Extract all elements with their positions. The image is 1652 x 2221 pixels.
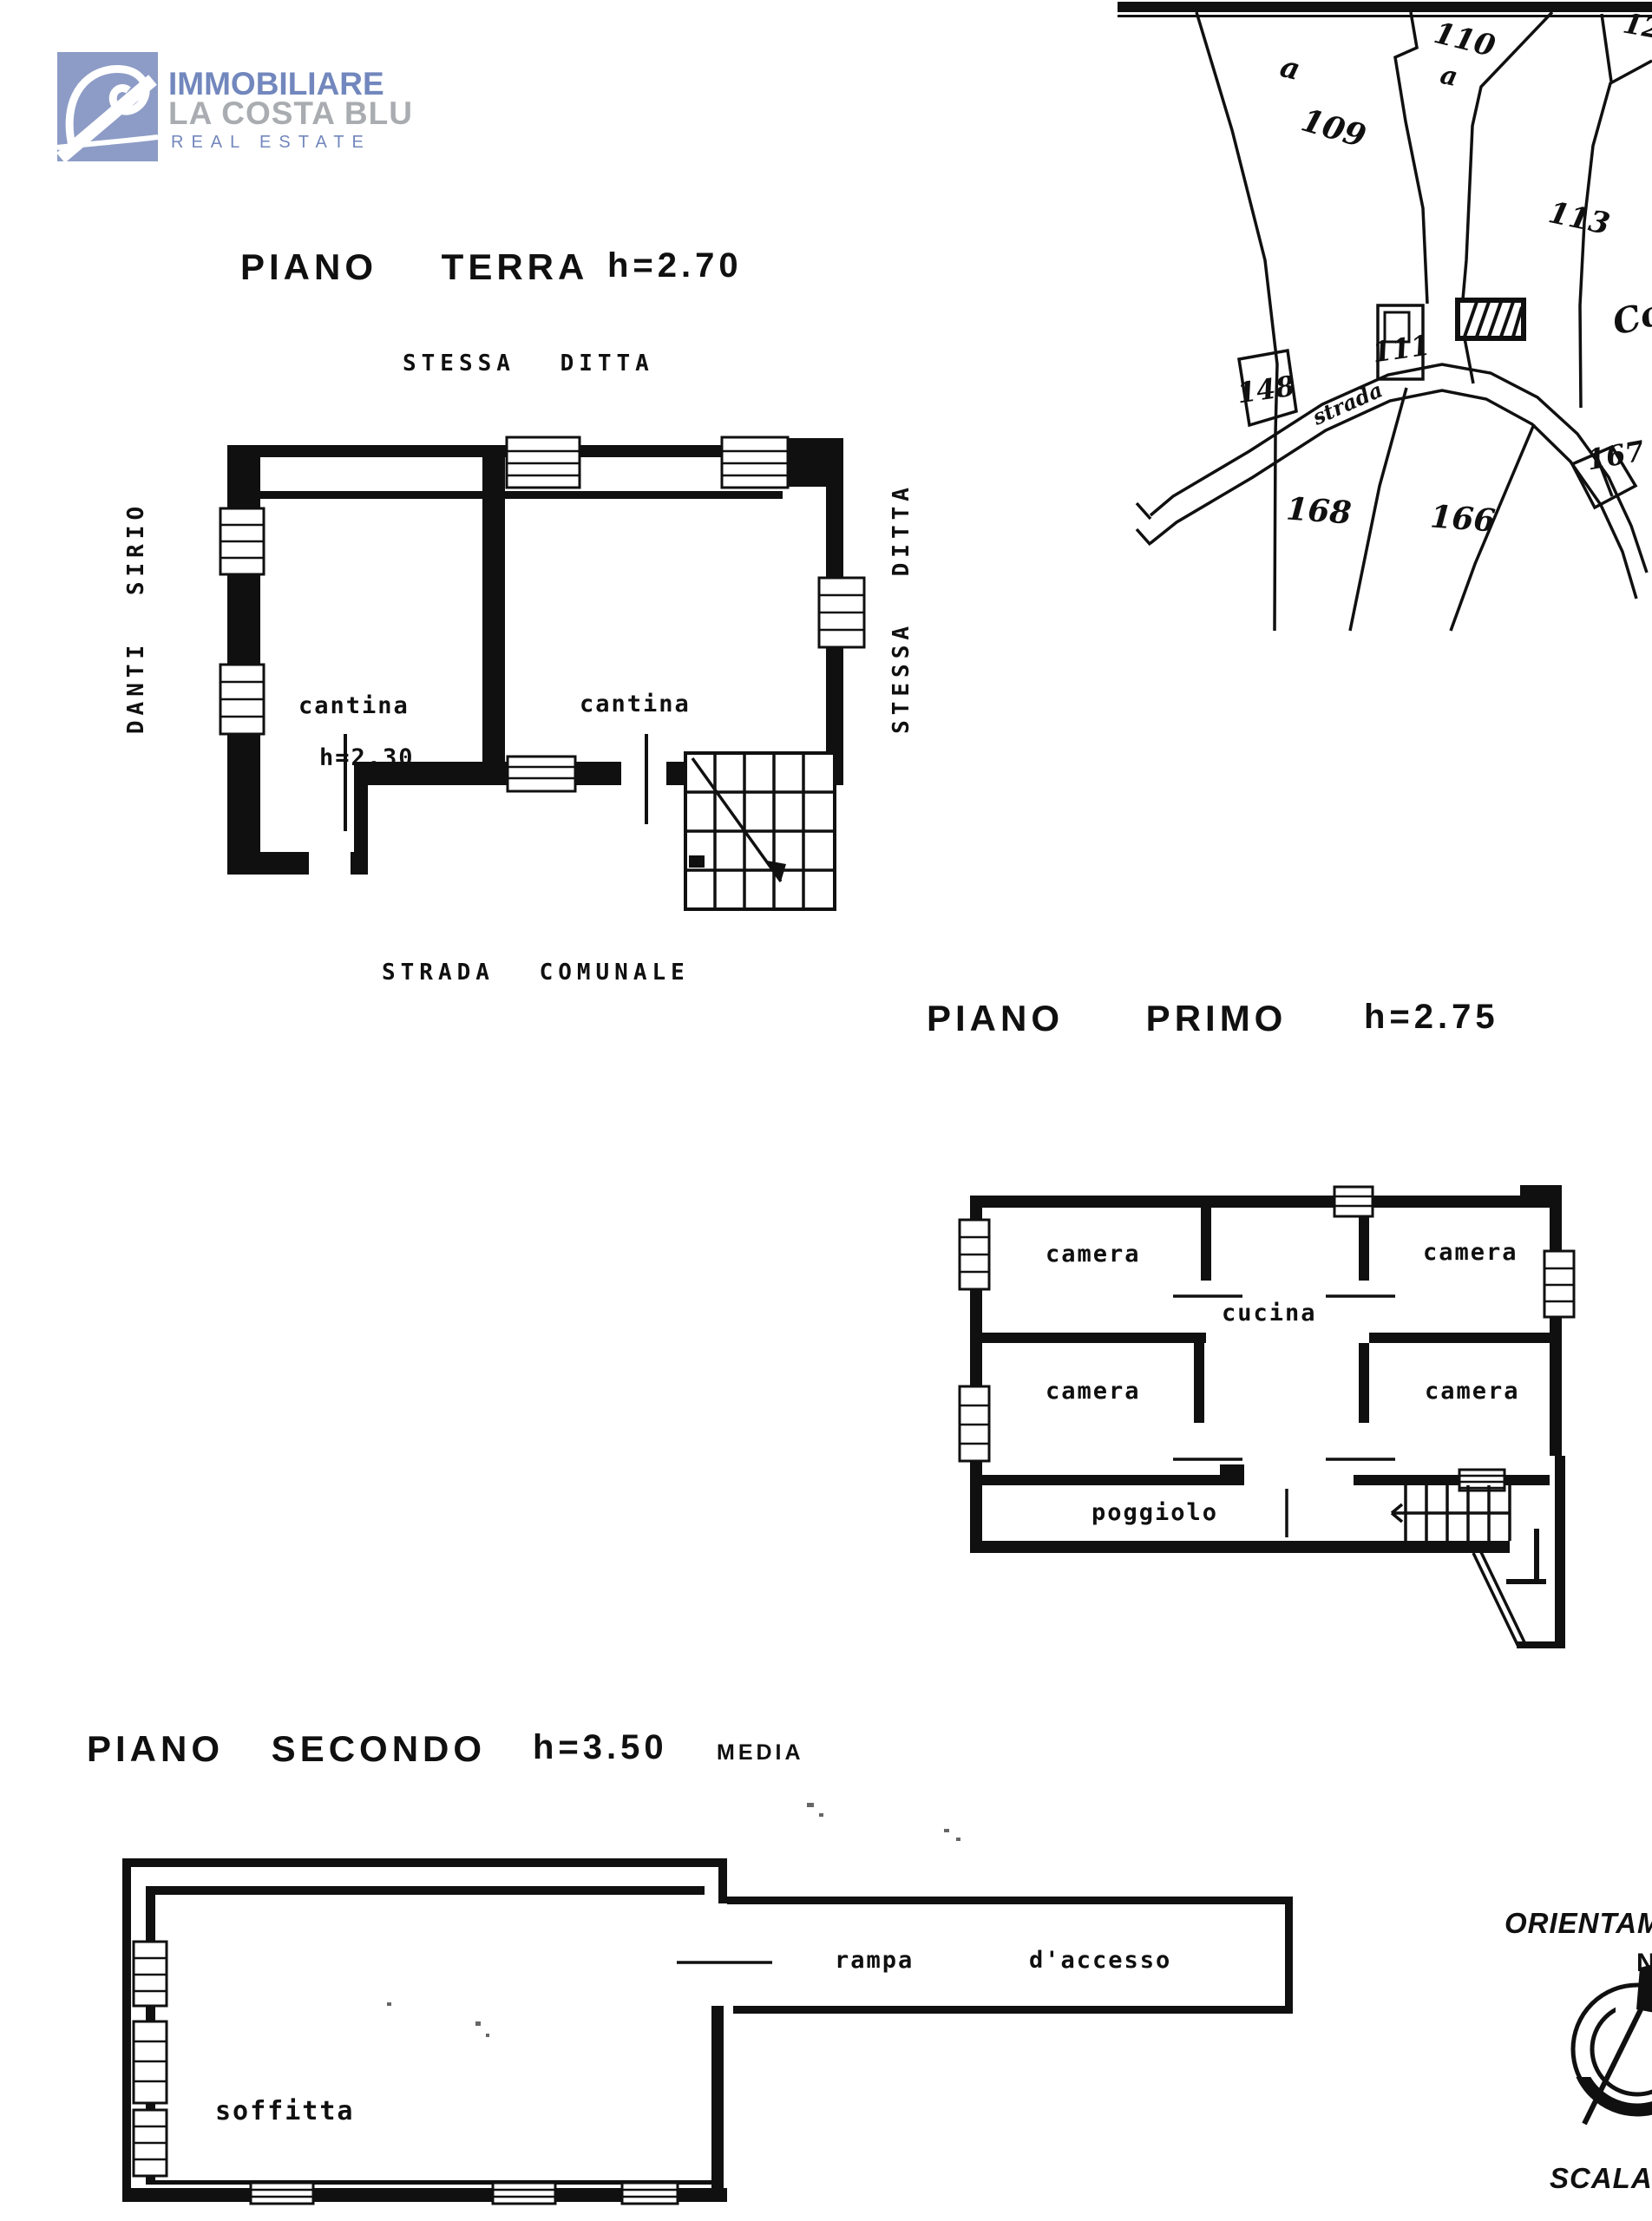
secondo-attic-label: soffitta: [215, 2096, 355, 2126]
primo-room-bl-label: camera: [1046, 1378, 1141, 1405]
primo-kitchen-label: cucina: [1222, 1300, 1317, 1327]
terra-neighbor-top: STESSA DITTA: [403, 351, 654, 377]
map-parcel-corner: 12: [1621, 6, 1652, 45]
terra-floorplan: [220, 437, 864, 909]
terra-title: PIANO TERRA: [240, 246, 588, 288]
terra-room-right-label: cantina: [580, 691, 691, 717]
primo-staircase: [1392, 1485, 1525, 1647]
primo-room-br-label: camera: [1425, 1378, 1520, 1405]
primo-room-tr-label: camera: [1423, 1239, 1518, 1266]
map-parcel-166: 166: [1429, 498, 1497, 539]
primo-room-tl-label: camera: [1046, 1241, 1141, 1268]
scan-specks: [387, 1803, 960, 2037]
terra-neighbor-right: STESSA DITTA: [888, 474, 914, 743]
terra-street-label: STRADA COMUNALE: [382, 960, 690, 986]
primo-title: PIANO PRIMO: [927, 998, 1287, 1039]
floorplan-sheet: IMMOBILIARE LA COSTA BLU REAL ESTATE PIA…: [0, 0, 1652, 2221]
secondo-height-label: h=3.50: [533, 1728, 668, 1767]
secondo-ramp-label-2: d'accesso: [1029, 1947, 1171, 1974]
logo-name-line3: REAL ESTATE: [171, 133, 371, 153]
secondo-ramp-label-1: rampa: [835, 1947, 914, 1974]
compass-orientation-label: ORIENTAMENTO: [1504, 1907, 1652, 1940]
terra-staircase: [685, 753, 835, 909]
primo-balcony-label: poggiolo: [1091, 1499, 1218, 1526]
compass-icon: [1573, 1962, 1652, 2124]
secondo-height-note: MEDIA: [717, 1740, 804, 1766]
compass-scale-label: SCALA: [1550, 2162, 1652, 2195]
terra-height-label: h=2.70: [607, 246, 743, 285]
hatched-building-icon: [1458, 300, 1524, 338]
secondo-title: PIANO SECONDO: [87, 1728, 486, 1770]
primo-height-label: h=2.75: [1364, 998, 1499, 1037]
terra-room-left-label: cantina: [298, 692, 410, 719]
logo-wave-icon: [57, 52, 158, 161]
terra-room-left-height: h=2.30: [319, 744, 415, 771]
compass-north-label: N: [1636, 1949, 1652, 1978]
logo-name-line2: LA COSTA BLU: [168, 95, 413, 132]
map-parcel-168: 168: [1285, 490, 1353, 531]
secondo-floorplan: [122, 1803, 1293, 2204]
terra-neighbor-left: DANTI SIRIO: [123, 496, 149, 739]
cadastral-map-drawing: [1118, 2, 1652, 631]
